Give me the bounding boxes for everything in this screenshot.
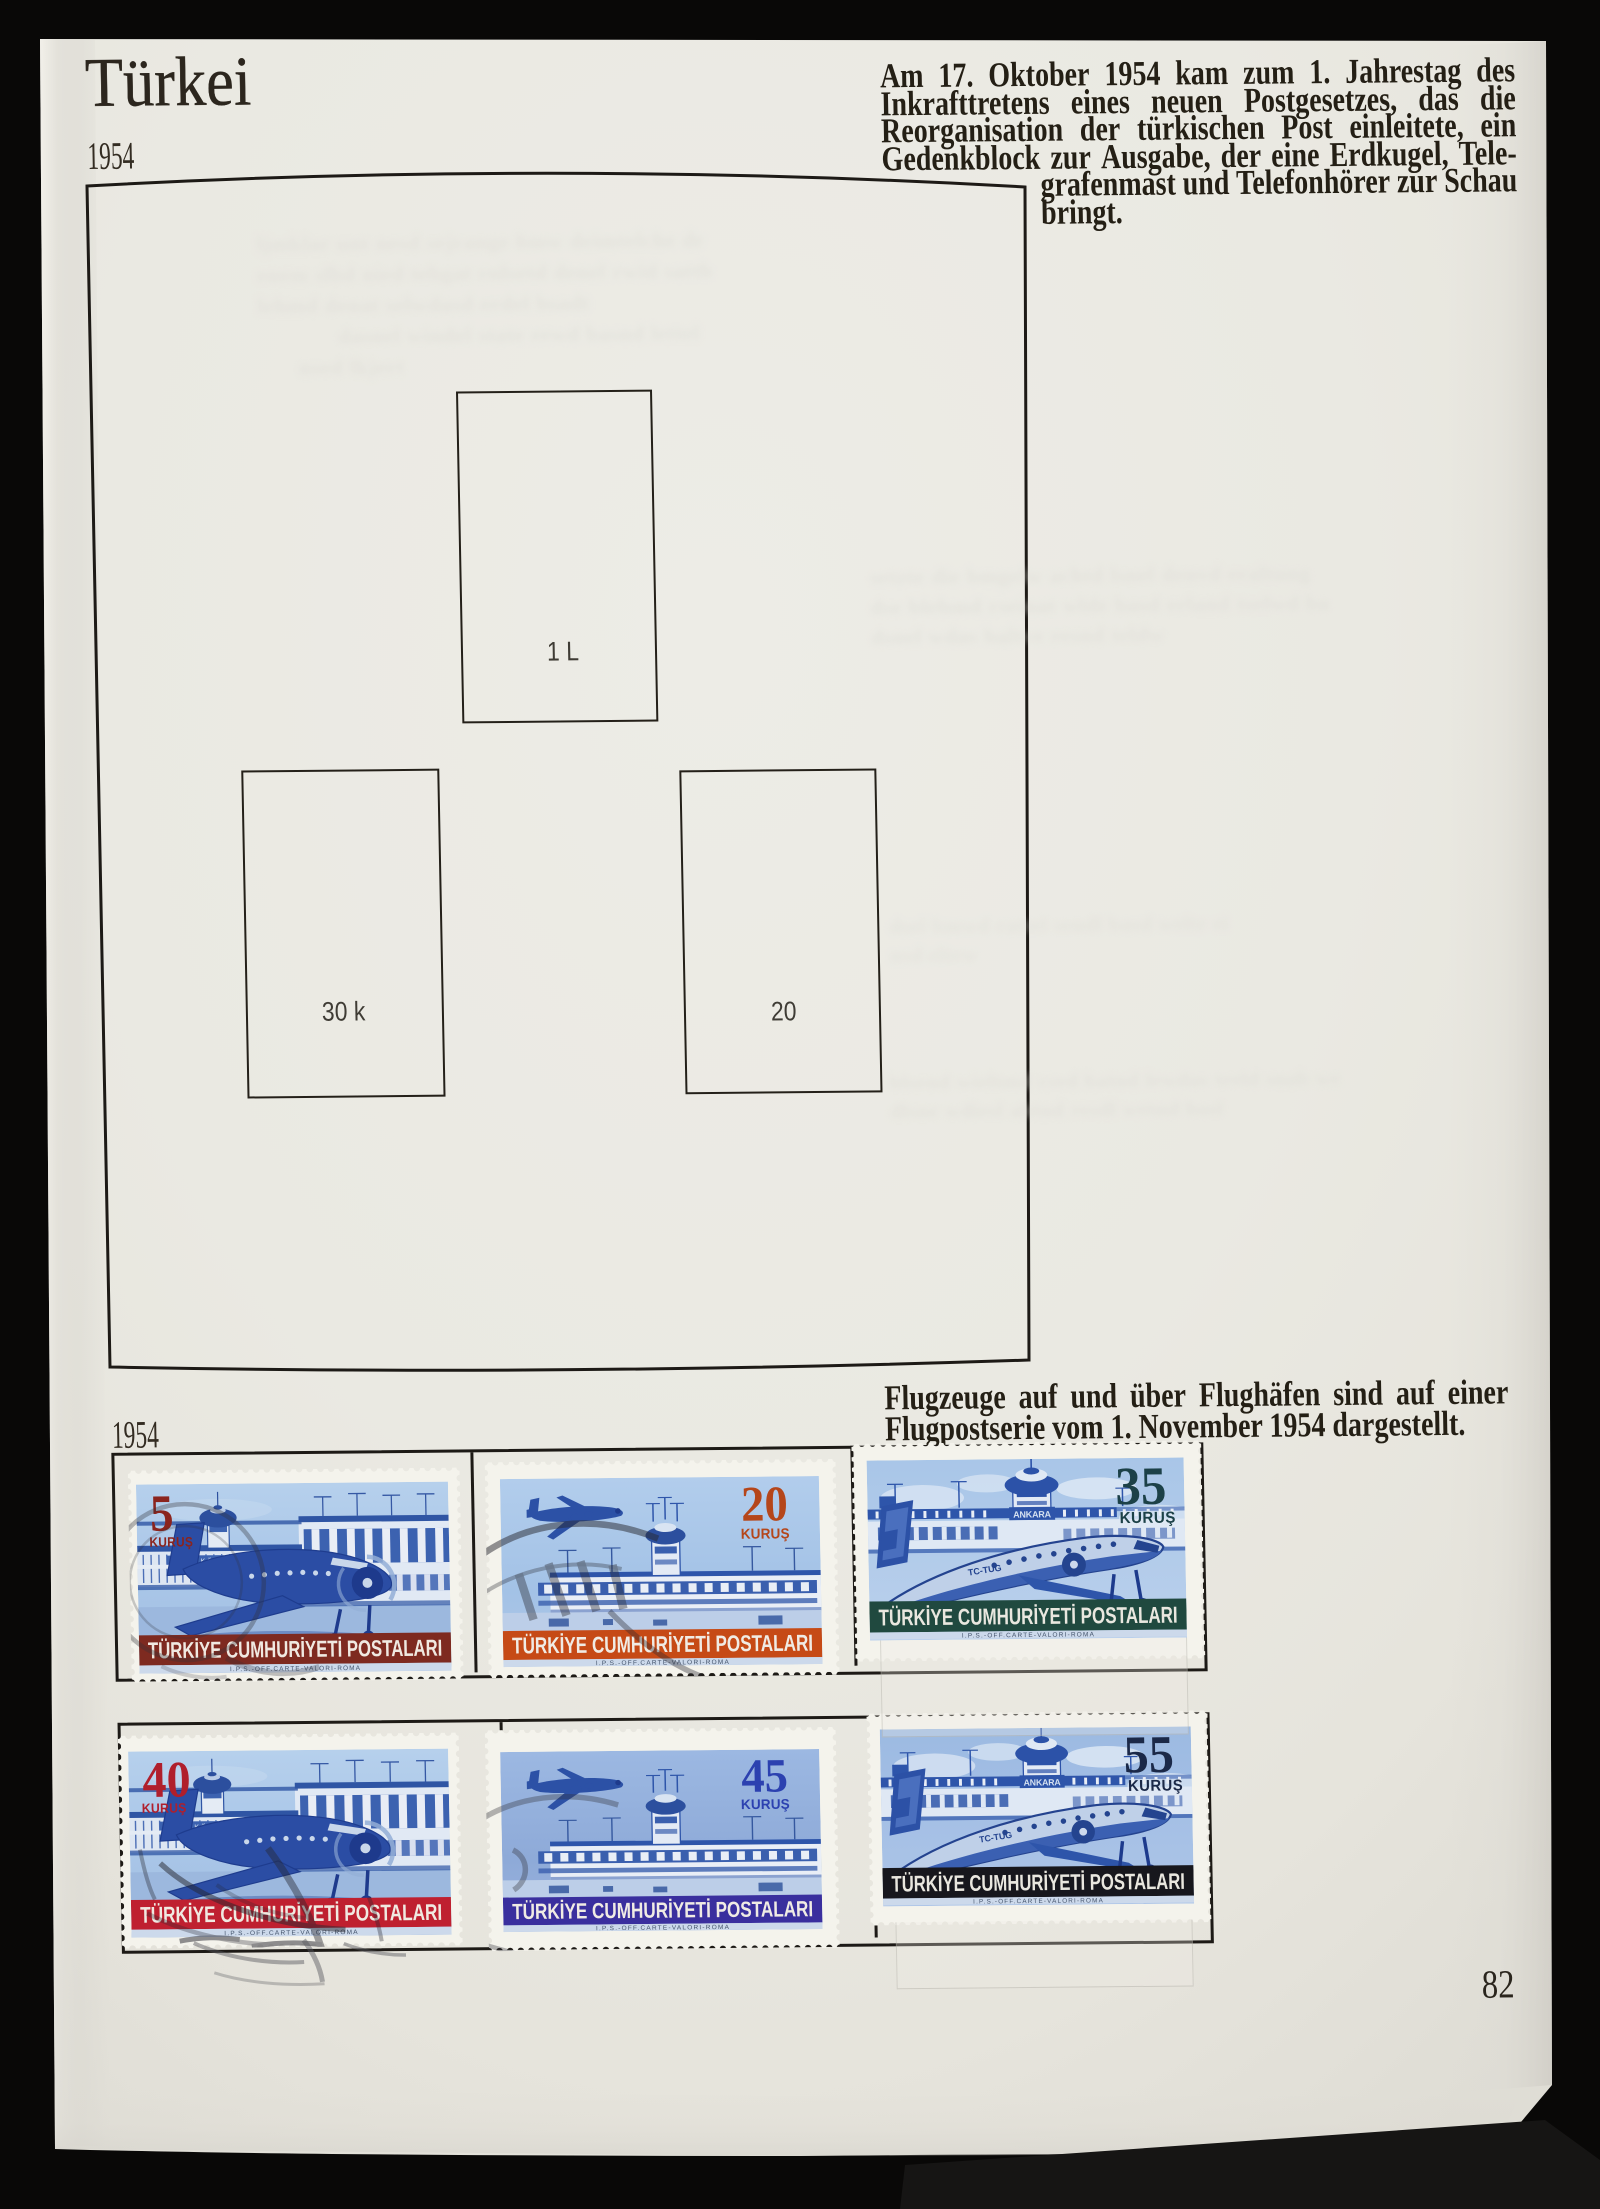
svg-text:35: 35 [1115,1456,1167,1516]
svg-text:TÜRKİYE CUMHURİYETİ POSTALARI: TÜRKİYE CUMHURİYETİ POSTALARI [878,1602,1178,1631]
svg-text:ANKARA: ANKARA [1013,1509,1052,1519]
svg-text:20: 20 [741,1477,789,1532]
svg-text:KURUŞ: KURUŞ [741,1525,790,1542]
svg-text:KURUŞ: KURUŞ [142,1800,187,1816]
svg-text:I.P.S.-OFF.CARTE-VALORI-ROMA: I.P.S.-OFF.CARTE-VALORI-ROMA [973,1897,1104,1905]
svg-text:KURUŞ: KURUŞ [1119,1509,1176,1527]
svg-text:KURUŞ: KURUŞ [149,1534,193,1550]
svg-text:KURUŞ: KURUŞ [1128,1777,1183,1795]
svg-text:TÜRKİYE CUMHURİYETİ POSTALARI: TÜRKİYE CUMHURİYETİ POSTALARI [891,1869,1185,1897]
svg-text:TÜRKİYE CUMHURİYETİ POSTALARI: TÜRKİYE CUMHURİYETİ POSTALARI [512,1897,813,1924]
svg-text:ANKARA: ANKARA [1023,1777,1061,1787]
svg-text:KURUŞ: KURUŞ [741,1797,790,1813]
svg-text:45: 45 [741,1750,789,1803]
